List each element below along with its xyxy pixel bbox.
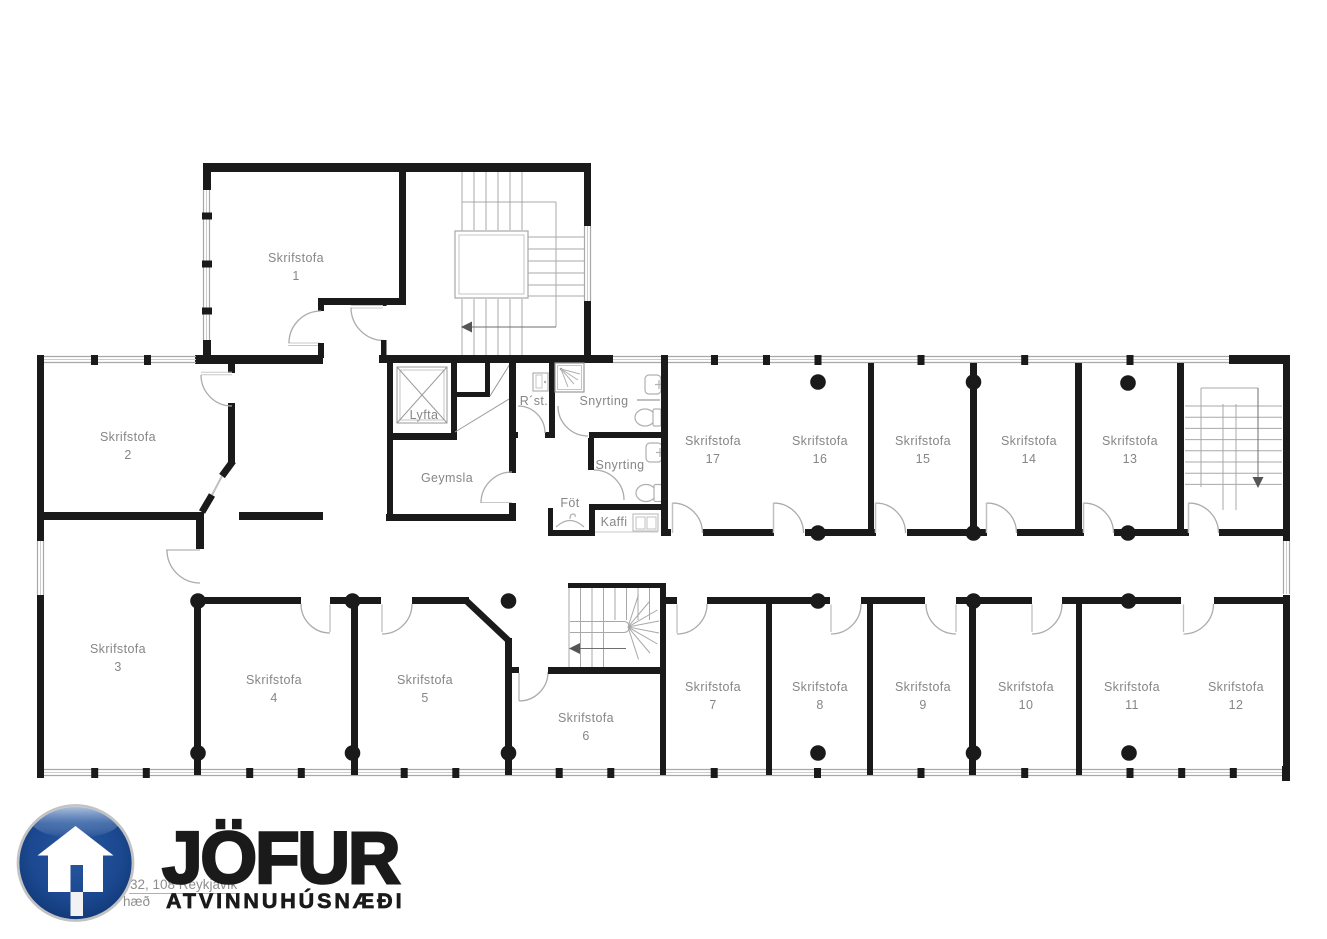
svg-text:Skrifstofa: Skrifstofa [895,680,951,694]
svg-text:JÖFUR: JÖFUR [162,818,400,899]
svg-text:8: 8 [816,698,823,712]
svg-text:Skrifstofa: Skrifstofa [268,251,324,265]
svg-text:Skrifstofa: Skrifstofa [397,673,453,687]
svg-text:hæð: hæð [123,894,150,909]
svg-text:ATVINNUHÚSNÆÐI: ATVINNUHÚSNÆÐI [166,888,404,913]
svg-text:Snyrting: Snyrting [579,394,628,408]
svg-text:11: 11 [1125,698,1139,712]
svg-text:Skrifstofa: Skrifstofa [895,434,951,448]
svg-text:Skrifstofa: Skrifstofa [100,430,156,444]
svg-text:17: 17 [706,452,721,466]
svg-text:R´st.: R´st. [520,394,548,408]
svg-text:Skrifstofa: Skrifstofa [792,680,848,694]
svg-text:Kaffi: Kaffi [601,515,628,529]
svg-text:4: 4 [270,691,277,705]
svg-text:6: 6 [582,729,589,743]
svg-text:Skrifstofa: Skrifstofa [685,434,741,448]
svg-text:12: 12 [1229,698,1244,712]
svg-text:Skrifstofa: Skrifstofa [1001,434,1057,448]
svg-text:1: 1 [292,269,299,283]
svg-text:Skrifstofa: Skrifstofa [1208,680,1264,694]
svg-text:5: 5 [421,691,428,705]
svg-text:7: 7 [709,698,716,712]
svg-text:2: 2 [124,448,131,462]
svg-text:Skrifstofa: Skrifstofa [685,680,741,694]
svg-text:Skrifstofa: Skrifstofa [558,711,614,725]
svg-text:Skrifstofa: Skrifstofa [792,434,848,448]
svg-text:3: 3 [114,660,121,674]
svg-text:9: 9 [919,698,926,712]
svg-text:Skrifstofa: Skrifstofa [998,680,1054,694]
svg-text:Skrifstofa: Skrifstofa [1102,434,1158,448]
svg-text:13: 13 [1123,452,1138,466]
svg-text:Skrifstofa: Skrifstofa [246,673,302,687]
svg-text:Snyrting: Snyrting [595,458,644,472]
svg-text:16: 16 [813,452,828,466]
svg-text:10: 10 [1019,698,1034,712]
svg-text:15: 15 [916,452,931,466]
svg-text:Skrifstofa: Skrifstofa [90,642,146,656]
svg-text:Föt: Föt [560,496,579,510]
svg-text:Skrifstofa: Skrifstofa [1104,680,1160,694]
svg-text:Geymsla: Geymsla [421,471,473,485]
svg-text:14: 14 [1022,452,1037,466]
